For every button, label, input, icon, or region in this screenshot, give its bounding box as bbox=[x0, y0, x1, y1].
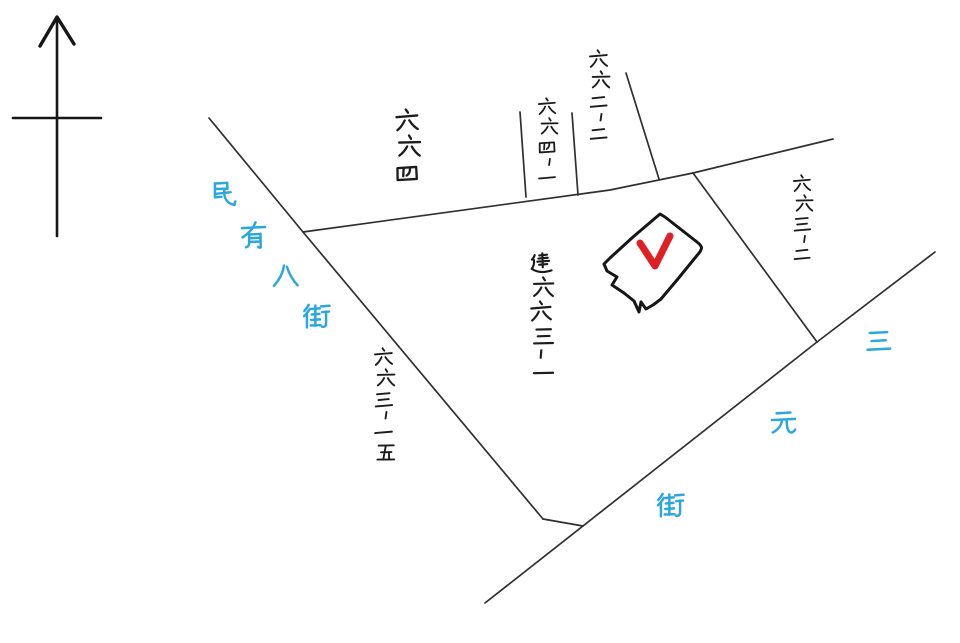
glyph-六 bbox=[588, 49, 610, 71]
parcel-north-boundary bbox=[303, 173, 693, 232]
lot-label-664 bbox=[395, 108, 421, 186]
glyph-六 bbox=[590, 70, 612, 92]
lot-label-663-2 bbox=[793, 174, 813, 264]
glyph-元 bbox=[769, 407, 798, 436]
lot-stub-line-2 bbox=[572, 113, 578, 195]
sketch-map bbox=[0, 0, 960, 643]
street-name-sanyuan bbox=[656, 326, 896, 526]
glyph-一 bbox=[373, 420, 395, 442]
map-linework bbox=[0, 0, 960, 643]
glyph-五 bbox=[375, 441, 397, 463]
glyph-民 bbox=[208, 180, 237, 209]
lot-label-664-1 bbox=[538, 97, 558, 187]
glyph-六 bbox=[394, 108, 421, 135]
glyph-六 bbox=[794, 194, 815, 215]
glyph-六 bbox=[792, 174, 813, 195]
glyph-三 bbox=[864, 326, 893, 355]
glyph-六 bbox=[396, 134, 423, 161]
parcel-bottom-edge bbox=[543, 519, 583, 526]
glyph-六 bbox=[531, 276, 556, 301]
glyph-三 bbox=[792, 214, 813, 235]
glyph-四 bbox=[394, 160, 421, 187]
glyph-一 bbox=[531, 360, 556, 385]
glyph-二 bbox=[588, 122, 610, 144]
lot-label-662-2 bbox=[589, 49, 610, 144]
glyph-一 bbox=[537, 167, 558, 188]
lot-label-663-15 bbox=[374, 347, 395, 463]
glyph-- bbox=[529, 348, 553, 361]
boundary-extension-northeast bbox=[693, 139, 833, 173]
glyph-六 bbox=[375, 368, 397, 390]
glyph-六 bbox=[373, 347, 395, 369]
glyph-六 bbox=[537, 97, 558, 118]
glyph-三 bbox=[373, 389, 395, 411]
glyph-街 bbox=[656, 491, 685, 520]
street-name-minyou-8th bbox=[208, 180, 338, 340]
glyph-三 bbox=[531, 324, 556, 349]
lot-stub-line-1 bbox=[520, 112, 526, 197]
glyph-二 bbox=[588, 91, 610, 113]
glyph-四 bbox=[537, 137, 558, 158]
glyph-- bbox=[590, 112, 611, 123]
glyph-建 bbox=[529, 252, 554, 277]
glyph-六 bbox=[529, 300, 554, 325]
glyph-- bbox=[375, 410, 396, 421]
north-arrow bbox=[13, 17, 101, 236]
glyph-有 bbox=[239, 220, 268, 249]
glyph-八 bbox=[271, 261, 300, 290]
glyph-二 bbox=[792, 244, 813, 265]
building-label-663-1 bbox=[530, 252, 554, 384]
lot-stub-line-3 bbox=[626, 73, 659, 179]
glyph-街 bbox=[302, 302, 331, 331]
glyph-六 bbox=[539, 117, 560, 138]
